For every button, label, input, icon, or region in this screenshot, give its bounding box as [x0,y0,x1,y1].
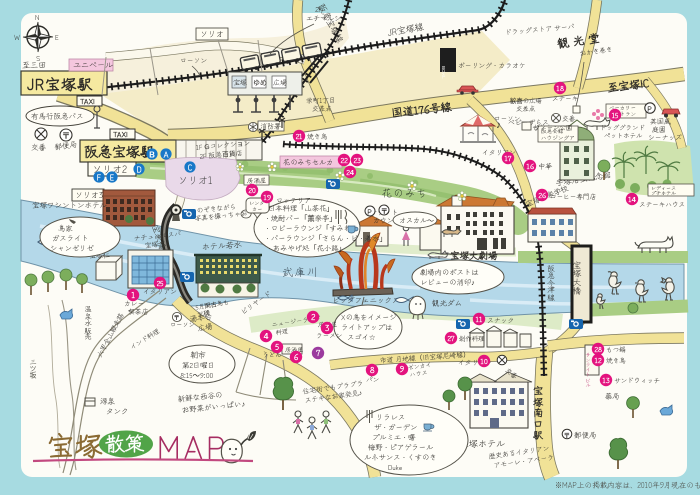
svg-text:広場: 広場 [272,78,287,88]
svg-text:9: 9 [399,363,404,375]
svg-text:10: 10 [479,356,487,367]
svg-text:エチマルシェ: エチマルシェ [306,14,348,24]
svg-text:12: 12 [593,355,601,366]
svg-text:P: P [647,103,651,114]
svg-text:N: N [35,13,39,23]
svg-text:ペットホテル: ペットホテル [604,131,643,140]
svg-text:23: 23 [353,155,361,166]
svg-text:ガスライト: ガスライト [52,234,88,244]
svg-text:交差点: 交差点 [312,103,332,113]
svg-text:〒: 〒 [381,206,388,216]
svg-text:ステーキハウス: ステーキハウス [639,199,685,209]
svg-text:MAP: MAP [157,423,228,469]
svg-text:宝塚大橋: 宝塚大橋 [571,260,583,296]
svg-text:・ロビーラウンジ「すみれ」: ・ロビーラウンジ「すみれ」 [264,224,358,234]
svg-text:・あみやげ処「花小路」: ・あみやげ処「花小路」 [266,244,346,254]
svg-text:スゴイ☆: スゴイ☆ [347,333,375,343]
svg-text:F: F [97,172,101,183]
svg-text:28: 28 [594,344,602,355]
svg-text:花のみちセルカ: 花のみちセルカ [283,158,333,168]
svg-text:サンライトビル: サンライトビル [584,352,592,387]
svg-text:宝塚: 宝塚 [233,78,248,88]
svg-text:プチホテル: プチホテル [651,190,677,197]
svg-text:B: B [149,149,155,160]
svg-text:リラレス: リラレス [376,413,405,423]
svg-text:宝塚ワシントンホテル: 宝塚ワシントンホテル [32,200,107,211]
svg-text:プルミエ・曙: プルミエ・曙 [372,433,415,443]
svg-text:有馬行阪急バス: 有馬行阪急バス [30,111,84,122]
svg-text:18: 18 [555,83,563,94]
svg-text:阪急今津線: 阪急今津線 [545,264,556,302]
svg-text:交番: 交番 [31,142,46,153]
svg-text:13: 13 [601,375,609,386]
svg-text:Xの鳥をイメージ: Xの鳥をイメージ [341,313,397,323]
svg-text:中華: 中華 [538,162,553,172]
svg-text:朝市: 朝市 [190,350,206,361]
svg-text:15: 15 [611,110,619,121]
svg-text:ユニベール: ユニベール [73,60,114,71]
svg-text:25: 25 [156,278,163,289]
svg-text:温泉水販売: 温泉水販売 [83,305,93,340]
svg-text:D: D [137,164,142,175]
svg-text:交差点: 交差点 [516,104,536,113]
svg-text:ザ・ガーデン: ザ・ガーデン [374,423,417,433]
svg-text:もつ鍋: もつ鍋 [606,344,626,354]
svg-text:6: 6 [294,351,299,363]
svg-text:ゆめ: ゆめ [253,78,267,88]
svg-text:ローソン: ローソン [180,55,207,65]
svg-text:阪急宝塚駅: 阪急宝塚駅 [84,142,155,162]
svg-text:2: 2 [311,311,315,323]
svg-text:・焼酎バー「薫楽亭」: ・焼酎バー「薫楽亭」 [264,214,337,224]
svg-text:ボーリング・カラオケ: ボーリング・カラオケ [458,60,526,70]
svg-text:ステーキ: ステーキ [552,93,578,103]
svg-text:武庫川: 武庫川 [282,265,320,280]
svg-text:薬局: 薬局 [605,392,619,402]
svg-text:宝塚: 宝塚 [47,425,103,464]
svg-text:3: 3 [325,322,329,334]
svg-text:至三田: 至三田 [22,60,46,71]
svg-text:C: C [188,162,193,173]
svg-text:11: 11 [475,314,483,325]
svg-text:郵便局: 郵便局 [573,430,597,441]
svg-text:カー: カー [252,206,262,213]
svg-text:JR宝塚駅: JR宝塚駅 [26,74,93,95]
svg-text:BOWL: BOWL [440,66,446,79]
svg-text:鳥家: 鳥家 [58,224,73,234]
svg-text:ビッグフェニックス: ビッグフェニックス [332,295,400,306]
svg-text:宝塚南口駅: 宝塚南口駅 [531,385,546,440]
svg-text:広場: 広場 [197,321,214,334]
svg-text:Duke: Duke [388,463,402,473]
svg-text:シャンゼリゼ: シャンゼリゼ [50,244,94,254]
svg-text:コーヒー専門店: コーヒー専門店 [550,191,596,201]
svg-text:・バーラウンジ「さらん・ビ・着水」: ・バーラウンジ「さらん・ビ・着水」 [264,234,387,244]
svg-text:4: 4 [264,330,269,342]
svg-text:24: 24 [346,167,355,178]
svg-text:8:15～9:00: 8:15～9:00 [180,371,213,381]
svg-text:オスカル～: オスカル～ [399,216,434,226]
svg-text:居酒屋: 居酒屋 [246,176,267,185]
svg-text:シーナッズ: シーナッズ [648,132,682,142]
svg-text:16: 16 [525,161,533,172]
svg-text:交番: 交番 [562,113,576,123]
svg-text:クィーン公園: クィーン公園 [534,123,572,132]
svg-text:散策: 散策 [105,428,145,457]
svg-text:17: 17 [503,153,511,164]
svg-text:19: 19 [262,192,270,203]
svg-text:スナック: スナック [487,315,514,325]
svg-text:A: A [163,149,168,160]
svg-text:E: E [110,172,114,183]
svg-text:観光ダム: 観光ダム [432,298,462,309]
svg-text:27: 27 [447,333,455,344]
svg-text:8: 8 [370,364,375,376]
svg-text:ソリオ: ソリオ [200,29,224,40]
svg-text:三ツ坂: 三ツ坂 [28,358,38,380]
svg-text:P: P [367,207,371,217]
svg-text:レビューの消印♪: レビューの消印♪ [420,278,475,288]
svg-text:サンドウィッチ: サンドウィッチ [614,375,661,385]
svg-text:※MAP上の掲載内容は、2010年9月現在のものです。: ※MAP上の掲載内容は、2010年9月現在のものです。 [555,480,700,491]
svg-text:5: 5 [275,341,279,353]
svg-text:ハウジングア: ハウジングア [541,134,575,142]
svg-text:W: W [14,33,20,43]
svg-text:14: 14 [627,194,636,205]
svg-text:花のみち: 花のみち [382,185,428,200]
svg-text:梅野・ピアゲラール: 梅野・ピアゲラール [367,443,433,453]
svg-text:22: 22 [340,155,348,166]
svg-text:26: 26 [538,190,546,201]
svg-text:21: 21 [295,131,302,142]
svg-text:〒: 〒 [564,430,570,439]
svg-text:焼き鳥: 焼き鳥 [307,131,328,141]
svg-text:劇場内のポストは: 劇場内のポストは [420,268,478,278]
svg-text:TAXI: TAXI [80,96,95,107]
svg-text:焼き鳥: 焼き鳥 [606,355,626,365]
svg-text:ロッテリア: ロッテリア [276,196,311,206]
svg-text:20: 20 [248,185,256,196]
svg-text:タンク: タンク [106,406,129,417]
svg-text:7: 7 [316,347,321,359]
svg-text:ルネサンス・くすのき: ルネサンス・くすのき [364,453,437,463]
svg-text:ローソン: ローソン [170,320,195,329]
svg-text:ソリオ1: ソリオ1 [178,172,213,187]
svg-text:TAXI: TAXI [113,129,128,140]
svg-text:第2日曜日: 第2日曜日 [182,361,215,371]
svg-text:ライトアップは: ライトアップは [341,323,392,333]
svg-text:喫茶店: 喫茶店 [128,306,149,316]
svg-text:E: E [55,33,59,43]
svg-text:創作料理: 創作料理 [458,334,485,343]
